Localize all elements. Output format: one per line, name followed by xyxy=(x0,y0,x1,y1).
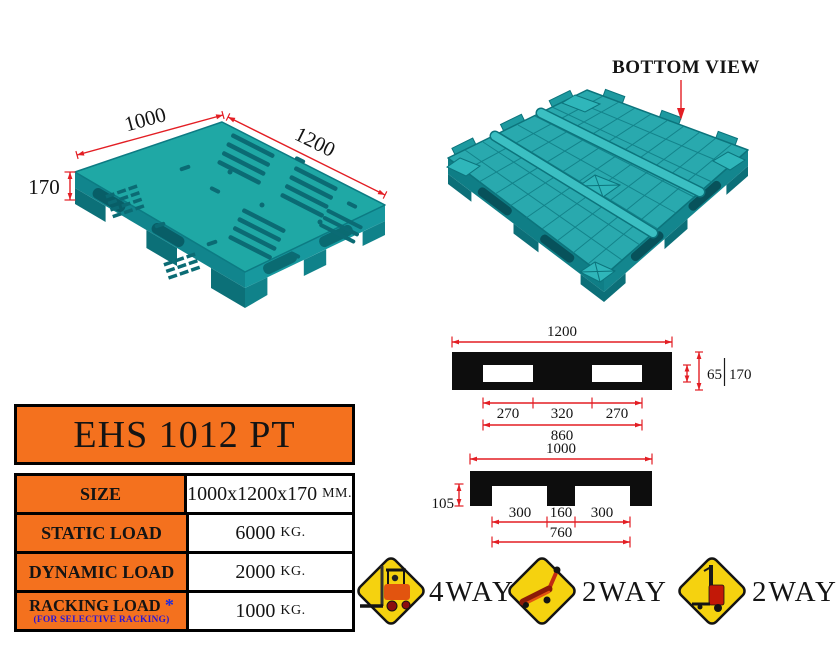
dim-170-label: 170 xyxy=(28,175,60,199)
racking-load-asterisk: * xyxy=(165,595,174,615)
value-text: 1000x1200x170 xyxy=(187,483,317,506)
p1000-body xyxy=(470,471,652,506)
table-row-dynamic-load: DYNAMIC LOAD 2000 KG. xyxy=(17,551,352,590)
row-value: 2000 KG. xyxy=(189,554,352,590)
entry-sign-pallet-jack-2way xyxy=(507,556,577,626)
p1200-slot-height-label: 65 xyxy=(707,367,722,383)
p1200-height-label: 170 xyxy=(729,367,752,383)
p1000-span-label: 760 xyxy=(550,525,573,541)
row-label: RACKING LOAD * (FOR SELECTIVE RACKING) xyxy=(17,593,189,629)
sign-2way-jack-label: 2WAY xyxy=(582,576,668,608)
bottom-view-label: BOTTOM VIEW xyxy=(612,57,760,78)
table-row-size: SIZE 1000x1200x170 MM. xyxy=(17,476,352,512)
row-value: 1000x1200x170 MM. xyxy=(187,476,352,512)
racking-load-label: RACKING LOAD * xyxy=(29,596,174,615)
value-unit: MM. xyxy=(322,486,352,502)
pallet-bottom-view-illustration xyxy=(447,89,748,302)
sign-4way-label: 4WAY xyxy=(429,576,515,608)
p1200-seg1-label: 270 xyxy=(497,406,520,422)
spec-rows: SIZE 1000x1200x170 MM. STATIC LOAD 6000 … xyxy=(14,473,355,632)
p1000-seg2-label: 160 xyxy=(550,505,573,521)
table-row-racking-load: RACKING LOAD * (FOR SELECTIVE RACKING) 1… xyxy=(17,590,352,629)
spec-table: EHS 1012 PT SIZE 1000x1200x170 MM. STATI… xyxy=(14,404,355,632)
row-label: DYNAMIC LOAD xyxy=(17,554,189,590)
model-title: EHS 1012 PT xyxy=(73,413,295,457)
value-text: 2000 xyxy=(235,561,275,584)
row-value: 1000 KG. xyxy=(189,593,352,629)
value-unit: KG. xyxy=(280,525,305,541)
entry-sign-stacker-2way xyxy=(677,556,747,626)
value-text: 1000 xyxy=(235,600,275,623)
p1000-seg1-label: 300 xyxy=(509,505,532,521)
value-text: 6000 xyxy=(235,522,275,545)
entry-sign-forklift-4way xyxy=(356,556,426,626)
p1200-seg2-label: 320 xyxy=(551,406,574,422)
profile-diagram-1000: 1000 105 300 160 300 760 xyxy=(432,441,653,548)
sign-2way-stacker-label: 2WAY xyxy=(752,576,838,608)
p1200-seg3-label: 270 xyxy=(606,406,629,422)
p1000-overall-label: 1000 xyxy=(546,441,576,457)
row-label: STATIC LOAD xyxy=(17,515,189,551)
value-unit: KG. xyxy=(280,603,305,619)
value-unit: KG. xyxy=(280,564,305,580)
row-value: 6000 KG. xyxy=(189,515,352,551)
row-label: SIZE xyxy=(17,476,187,512)
racking-load-note: (FOR SELECTIVE RACKING) xyxy=(33,616,169,626)
dim-170: 170 xyxy=(28,172,75,200)
p1200-overall-label: 1200 xyxy=(547,324,577,340)
pallet-top-isometric-illustration xyxy=(75,122,385,308)
model-title-box: EHS 1012 PT xyxy=(14,404,355,465)
pallet-spec-sheet: 1000 1200 170 xyxy=(0,0,840,650)
table-row-static-load: STATIC LOAD 6000 KG. xyxy=(17,512,352,551)
profile-diagram-1200: 1200 65 170 270 320 270 xyxy=(452,324,752,444)
p1000-foot-height-label: 105 xyxy=(432,496,455,512)
p1000-seg3-label: 300 xyxy=(591,505,614,521)
dim-1200-label: 1200 xyxy=(291,122,339,162)
